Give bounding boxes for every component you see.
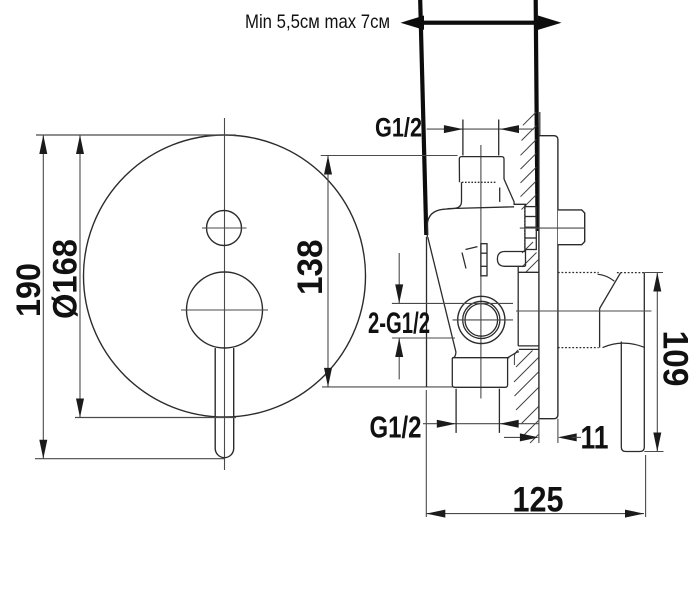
svg-text:138: 138 xyxy=(291,240,330,296)
svg-text:11: 11 xyxy=(581,420,609,456)
svg-text:G1/2: G1/2 xyxy=(375,113,422,143)
svg-text:Min 5,5см max 7см: Min 5,5см max 7см xyxy=(245,11,390,33)
svg-text:2-G1/2: 2-G1/2 xyxy=(368,307,430,340)
svg-text:125: 125 xyxy=(513,481,564,520)
svg-text:109: 109 xyxy=(656,331,695,387)
svg-text:190: 190 xyxy=(10,263,48,317)
svg-text:G1/2: G1/2 xyxy=(370,410,422,445)
svg-text:Ø168: Ø168 xyxy=(47,239,85,319)
